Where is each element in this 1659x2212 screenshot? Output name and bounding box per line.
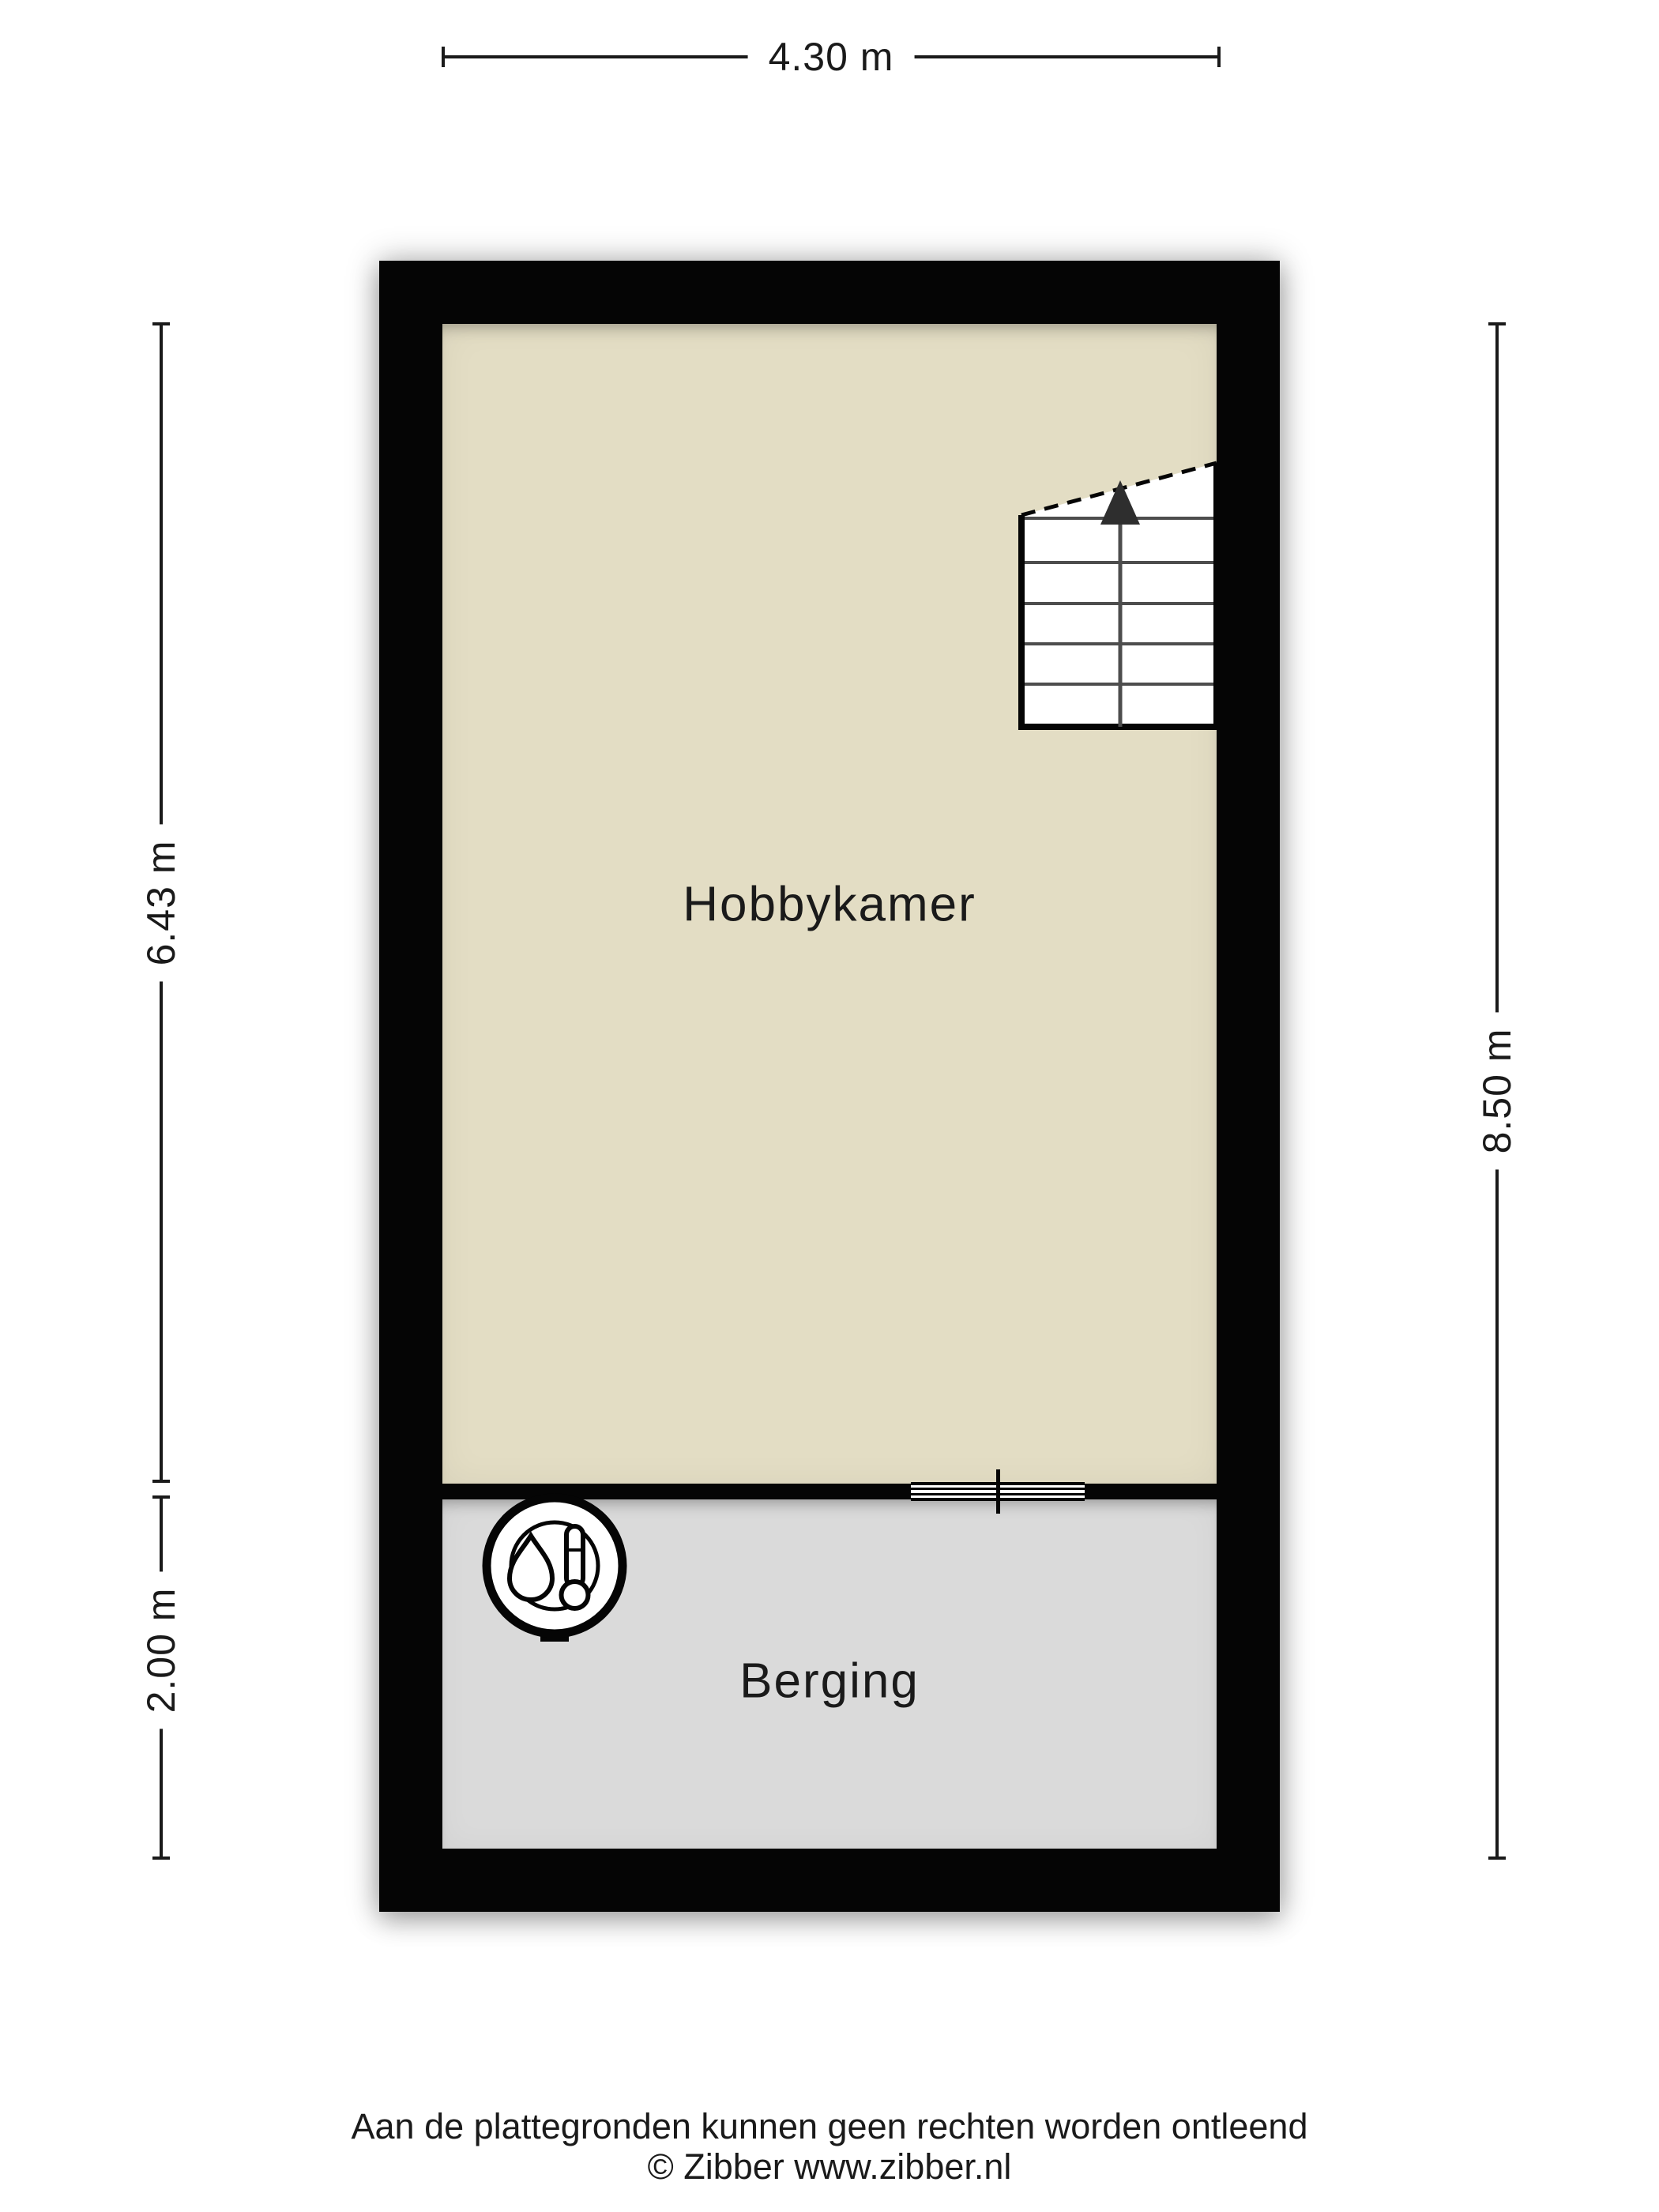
door-center-tick	[996, 1469, 1000, 1514]
dimension-tick	[152, 1856, 170, 1860]
dimension-tick	[1488, 1856, 1506, 1860]
boiler-outer-ring	[487, 1498, 623, 1634]
boiler-icon	[466, 1479, 643, 1650]
room-label-hobbykamer: Hobbykamer	[683, 877, 976, 933]
outer-walls: Hobbykamer Berging	[379, 261, 1280, 1912]
dimension-label-right: 8.50 m	[1473, 1013, 1522, 1170]
dimension-tick	[1488, 322, 1506, 325]
footer-disclaimer: Aan de plattegronden kunnen geen rechten…	[352, 2106, 1308, 2147]
boiler-thermometer-icon	[562, 1526, 589, 1608]
door-opening-symbol	[911, 1482, 1085, 1501]
staircase	[1011, 450, 1224, 735]
dimension-tick	[152, 1480, 170, 1483]
dimension-label-left-lower: 2.00 m	[137, 1572, 186, 1729]
dimension-tick	[152, 1495, 170, 1499]
dimension-label-top: 4.30 m	[748, 32, 915, 81]
room-label-berging: Berging	[739, 1653, 920, 1710]
dimension-tick	[152, 322, 170, 325]
dimension-tick	[1217, 47, 1221, 67]
footer-copyright: © Zibber www.zibber.nl	[648, 2146, 1012, 2188]
dimension-tick	[442, 47, 445, 67]
dimension-label-left-upper: 6.43 m	[137, 825, 186, 982]
floorplan-canvas: 4.30 m 6.43 m 2.00 m 8.50 m Hobbykamer B…	[0, 0, 1659, 2212]
